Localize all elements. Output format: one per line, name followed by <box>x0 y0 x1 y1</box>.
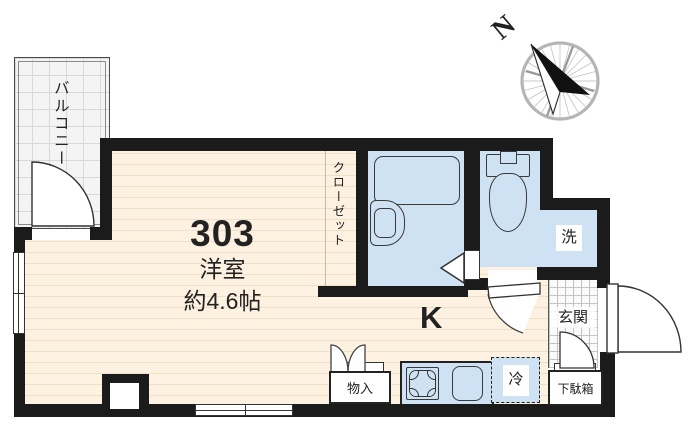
floorplan: 物入 下駄箱 冷 バルコニー クローゼット 303 洋室 <box>0 0 690 428</box>
compass-spokes <box>524 45 597 118</box>
balcony-label: バルコニー <box>51 80 69 210</box>
window-bottom <box>195 404 293 416</box>
storage-box: 物入 <box>329 371 391 404</box>
compass-needle-black <box>531 44 590 95</box>
wall-closet-bathroom <box>356 145 368 297</box>
refrigerator-label-box: 冷 <box>503 365 529 396</box>
compass-circle <box>522 43 598 119</box>
wall-bathroom-bottom <box>318 286 468 297</box>
compass-needle-white <box>531 44 560 114</box>
room-size: 約4.6帖 <box>150 288 295 314</box>
wall-top <box>100 138 553 151</box>
pillar-inner <box>110 383 139 409</box>
room-type: 洋室 <box>150 256 295 282</box>
wall-left-upper <box>14 227 25 253</box>
storage-label: 物入 <box>347 381 373 396</box>
toilet-tank-notch <box>500 151 517 164</box>
hall-door-opening <box>488 270 537 287</box>
closet-label: クローゼット <box>330 161 344 269</box>
refrigerator-label: 冷 <box>508 371 523 388</box>
washbasin-bowl <box>374 208 396 238</box>
bathtub <box>374 156 460 205</box>
front-door-arc <box>618 286 681 352</box>
kitchen-label: K <box>420 300 442 336</box>
closet-boundary-line <box>325 151 326 286</box>
wall-room-left-vertical <box>100 138 112 240</box>
entrance-label: 玄関 <box>550 307 596 328</box>
wall-balcony-bottom-right <box>90 227 112 240</box>
laundry-label: 洗 <box>556 225 582 251</box>
kitchen-sink <box>452 366 483 401</box>
wall-bathroom-toilet <box>464 138 480 250</box>
unit-number: 303 <box>150 213 295 256</box>
front-door-leaf <box>607 284 618 353</box>
compass <box>522 43 598 119</box>
stove-burner-icon <box>409 370 436 397</box>
shoe-cabinet-box: 下駄箱 <box>548 370 603 406</box>
wall-sanitary-bottom <box>537 267 610 280</box>
compass-north-label: N <box>486 9 522 47</box>
window-left <box>13 252 25 334</box>
bathroom-door-opening <box>464 250 480 280</box>
shoe-cabinet-label: 下駄箱 <box>557 382 593 396</box>
